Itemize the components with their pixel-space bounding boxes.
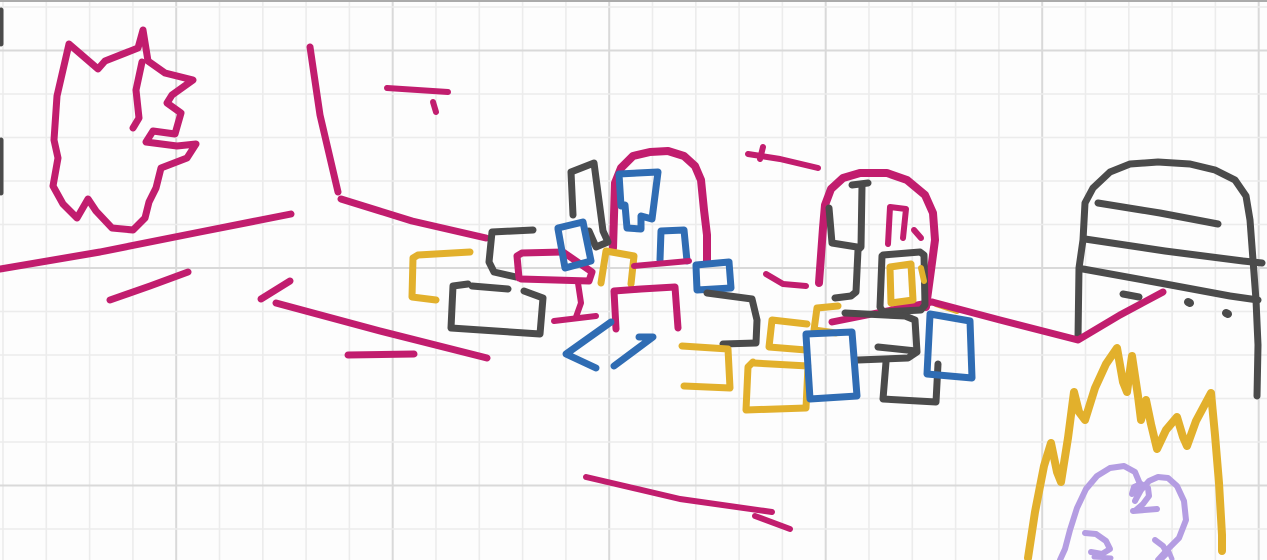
dark-dash-right (878, 347, 916, 351)
line-bottom (586, 477, 772, 512)
dome-band-1 (1098, 203, 1218, 224)
dome-dot-1 (1188, 302, 1190, 303)
flame-zigzag (1028, 348, 1222, 558)
blue-box-b (927, 314, 972, 378)
blue-diamond-right (614, 337, 653, 366)
dash-bottom (755, 516, 790, 529)
road-line-mid (341, 199, 486, 238)
bush-inner-line (133, 62, 142, 128)
dark-rect-dash (472, 286, 508, 289)
tall-dark-box (571, 163, 608, 247)
dome-eye-dash (1123, 294, 1139, 297)
dome-band-3 (1083, 269, 1258, 300)
dome-arch-2 (819, 173, 935, 307)
blue-arch-mid (660, 230, 687, 261)
strokes-layer (0, 1, 1267, 560)
yellow-small-bracket (769, 320, 807, 350)
purple-hook-right-tick (1169, 552, 1172, 559)
yellow-bracket-left (412, 252, 470, 300)
yellow-inner-box (890, 264, 913, 303)
bush-scribble (53, 30, 196, 230)
blue-square-small (696, 262, 731, 290)
yellow-tick-right (921, 268, 924, 281)
dash-lower (348, 354, 414, 355)
magenta-arch-inner (888, 207, 906, 244)
magenta-underline (554, 316, 596, 321)
magenta-diag (634, 261, 689, 266)
dark-seven-shape (707, 293, 757, 344)
dash-small (261, 281, 290, 299)
dome-band-2 (1085, 239, 1262, 263)
yellow-bracket-mid (682, 346, 730, 388)
curve-dash (766, 274, 806, 286)
blue-box-a (806, 332, 857, 399)
purple-doodle-main (1060, 466, 1186, 560)
dash-top-center (387, 88, 448, 92)
magenta-arch-tick (914, 230, 921, 238)
purple-hook-right (1155, 540, 1167, 559)
drawing-canvas[interactable] (0, 0, 1267, 560)
purple-hook-left (1085, 533, 1110, 554)
blue-diamond-left (566, 322, 611, 368)
magenta-pi-shape (614, 287, 678, 329)
tick-top-center (433, 102, 436, 112)
tick-near-dome2 (760, 147, 763, 159)
magenta-tail (576, 283, 581, 317)
purple-curl-bar (1133, 509, 1157, 511)
dark-step-left (829, 208, 857, 247)
yellow-big-rect (746, 362, 808, 410)
purple-hook-left-tick (1094, 557, 1111, 558)
dome-dot-2 (1226, 313, 1228, 314)
road-line-top (310, 47, 338, 192)
canvas-wrapper (0, 0, 1267, 560)
